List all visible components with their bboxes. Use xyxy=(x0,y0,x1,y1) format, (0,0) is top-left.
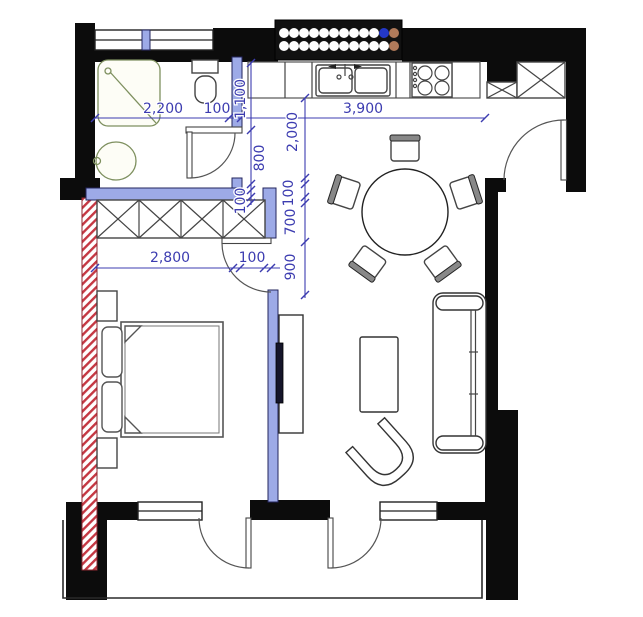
bathroom-window xyxy=(95,30,213,50)
stove xyxy=(412,63,452,97)
bedroom-balcony-door xyxy=(199,518,251,568)
door-swing-arc xyxy=(331,518,381,568)
dim-kitchen-width: 3,900 xyxy=(343,101,383,117)
armchair xyxy=(346,418,421,494)
dim-bedroom-width: 2,800 xyxy=(150,250,190,266)
kitchen-counter xyxy=(248,62,480,98)
toilet-bowl xyxy=(195,76,216,103)
dim-closet-wall: 100 xyxy=(281,180,297,207)
dim-bath-wall: 100 xyxy=(233,188,249,215)
toilet-tank xyxy=(192,60,218,73)
toilet xyxy=(192,60,218,103)
tv-unit xyxy=(276,315,303,433)
grille-dot-tan xyxy=(389,28,399,38)
dining-chair xyxy=(422,244,462,283)
pillow xyxy=(102,327,122,377)
sofa-armrest xyxy=(436,296,483,310)
window-mullion xyxy=(142,30,150,50)
coffee-table xyxy=(360,337,398,412)
door-leaf xyxy=(328,518,333,568)
wall-entry-stub xyxy=(485,178,506,192)
balcony-railing xyxy=(63,520,482,598)
wall-right-vestibule xyxy=(566,28,586,192)
dim-doorway-height: 900 xyxy=(283,254,299,281)
door-swing-arc xyxy=(199,518,249,568)
door-leaf xyxy=(561,120,567,180)
ventilation-grille xyxy=(275,20,402,60)
bed xyxy=(102,322,223,437)
basin-outline xyxy=(96,142,136,180)
dim-top-wall: 100 xyxy=(204,101,231,117)
floor-plan-drawing: 2,200 100 3,900 1,100 800 100 2,000 100 … xyxy=(0,0,643,617)
entry-door xyxy=(504,120,567,180)
dim-wc-depth: 1,100 xyxy=(233,79,249,119)
wall-left-top xyxy=(75,23,95,183)
door-leaf xyxy=(246,518,251,568)
door-leaf xyxy=(222,238,271,244)
grille-dot-blue xyxy=(379,28,389,38)
wall-right-mid xyxy=(485,192,498,412)
dining-set xyxy=(327,135,483,283)
partition-bath-south xyxy=(86,188,242,200)
grille-box xyxy=(275,20,402,60)
bedroom-furniture xyxy=(97,291,223,468)
grille-dot-tan xyxy=(389,41,399,51)
dim-kitchen-depth: 2,000 xyxy=(285,112,301,152)
door-leaf xyxy=(187,132,192,178)
living-balcony-window xyxy=(380,502,437,520)
wall-bottom-right-band xyxy=(437,502,486,520)
dim-alcove-depth: 800 xyxy=(252,145,268,172)
nightstand xyxy=(97,291,117,321)
tv-screen xyxy=(276,343,283,403)
living-balcony-door xyxy=(328,518,381,568)
floor-plan: 2,200 100 3,900 1,100 800 100 2,000 100 … xyxy=(0,0,643,617)
partition-jamb-cap xyxy=(232,178,242,188)
wall-top-right xyxy=(402,28,586,62)
dining-chair xyxy=(390,135,420,161)
dining-chair xyxy=(348,244,388,283)
pillow xyxy=(102,382,122,432)
wall-top-center xyxy=(213,28,278,62)
hatched-demolition-wall xyxy=(82,198,97,570)
washbasin xyxy=(94,142,137,180)
kitchen-sink xyxy=(316,64,390,96)
sofa-armrest xyxy=(436,436,483,450)
dining-chair xyxy=(449,174,483,211)
door-swing-arc xyxy=(504,120,564,180)
dim-closet-depth: 700 xyxy=(283,209,299,236)
dim-door-leaf: 100 xyxy=(239,250,266,266)
wall-bottom-left-band xyxy=(107,502,138,520)
wall-column xyxy=(487,62,517,82)
door-swing-arc xyxy=(190,133,235,178)
wall-right-lower xyxy=(485,410,518,502)
sofa xyxy=(433,293,486,453)
dim-bath-width: 2,200 xyxy=(143,101,183,117)
wall-bottom-pier xyxy=(250,500,330,520)
dining-chair xyxy=(327,174,361,211)
bedroom-balcony-window xyxy=(138,502,202,520)
wc-alcove-wall xyxy=(186,127,242,133)
wall-bottom-right-block xyxy=(486,500,518,600)
dining-table xyxy=(362,169,448,255)
wc-door xyxy=(187,132,235,178)
living-furniture xyxy=(276,293,486,493)
nightstand xyxy=(97,438,117,468)
